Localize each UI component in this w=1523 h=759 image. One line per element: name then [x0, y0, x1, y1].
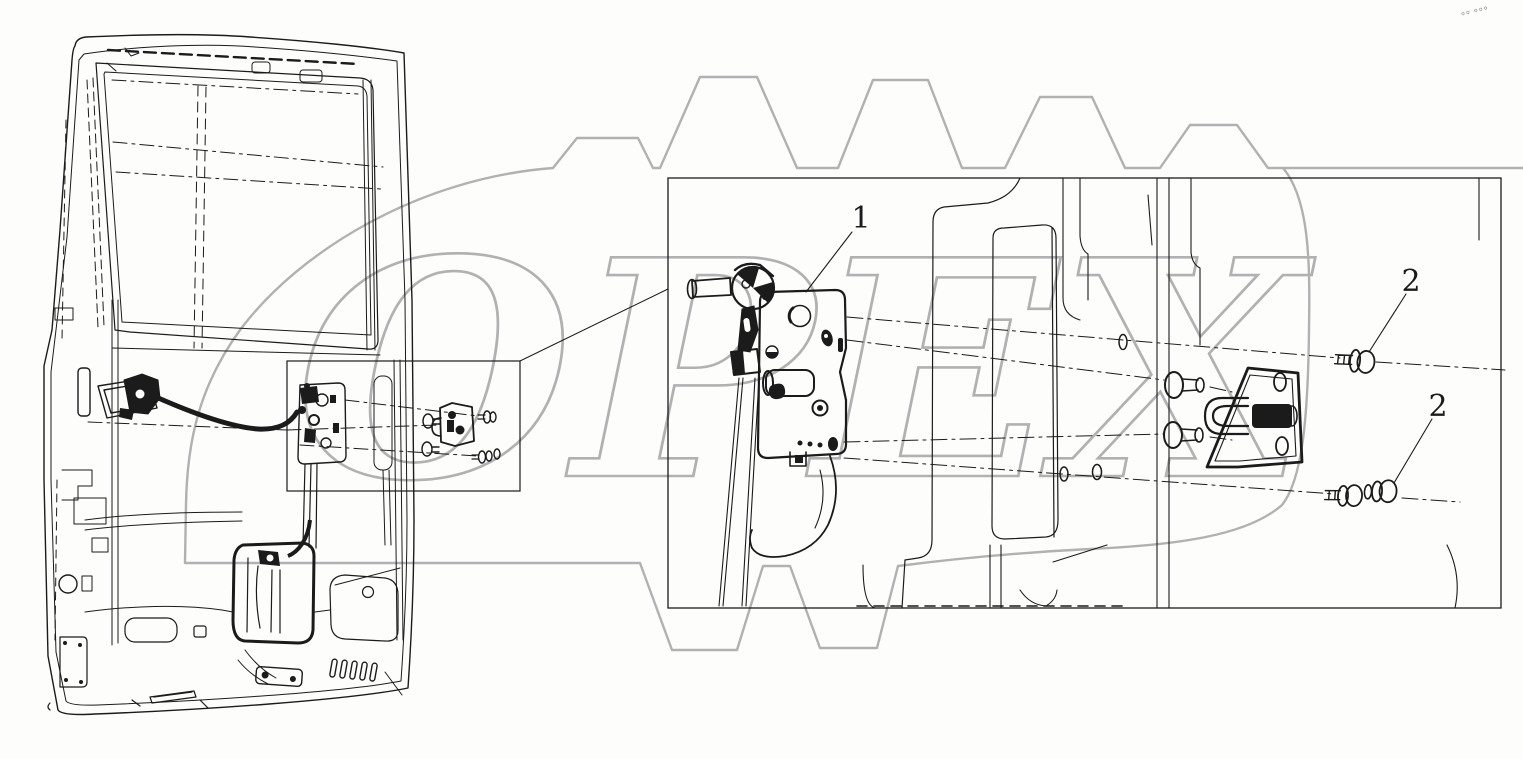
door-check-strap: [78, 368, 90, 416]
callout-2-lower: 2: [1394, 389, 1448, 483]
door-bottom-details: [48, 618, 378, 710]
callout-1-label: 1: [851, 201, 870, 236]
vent-slots: [329, 659, 377, 682]
bolt-lower-right: [1364, 479, 1397, 503]
callout-2-upper: 2: [1369, 264, 1421, 352]
callout-2-upper-label: 2: [1401, 264, 1420, 299]
door-pocket: [233, 543, 314, 643]
parts-diagram-page: OPEX °° °°°: [0, 0, 1523, 759]
door-left-edge-details: [55, 120, 108, 687]
door-lower-recess: [330, 568, 402, 695]
inside-handle: [98, 374, 160, 420]
bolt-lower-left: [1324, 483, 1362, 507]
lock-cable: [156, 397, 297, 429]
diagram-canvas: OPEX °° °°°: [0, 0, 1523, 759]
corner-mark: °° °°°: [1460, 5, 1490, 22]
callout-2-lower-label: 2: [1428, 389, 1447, 424]
